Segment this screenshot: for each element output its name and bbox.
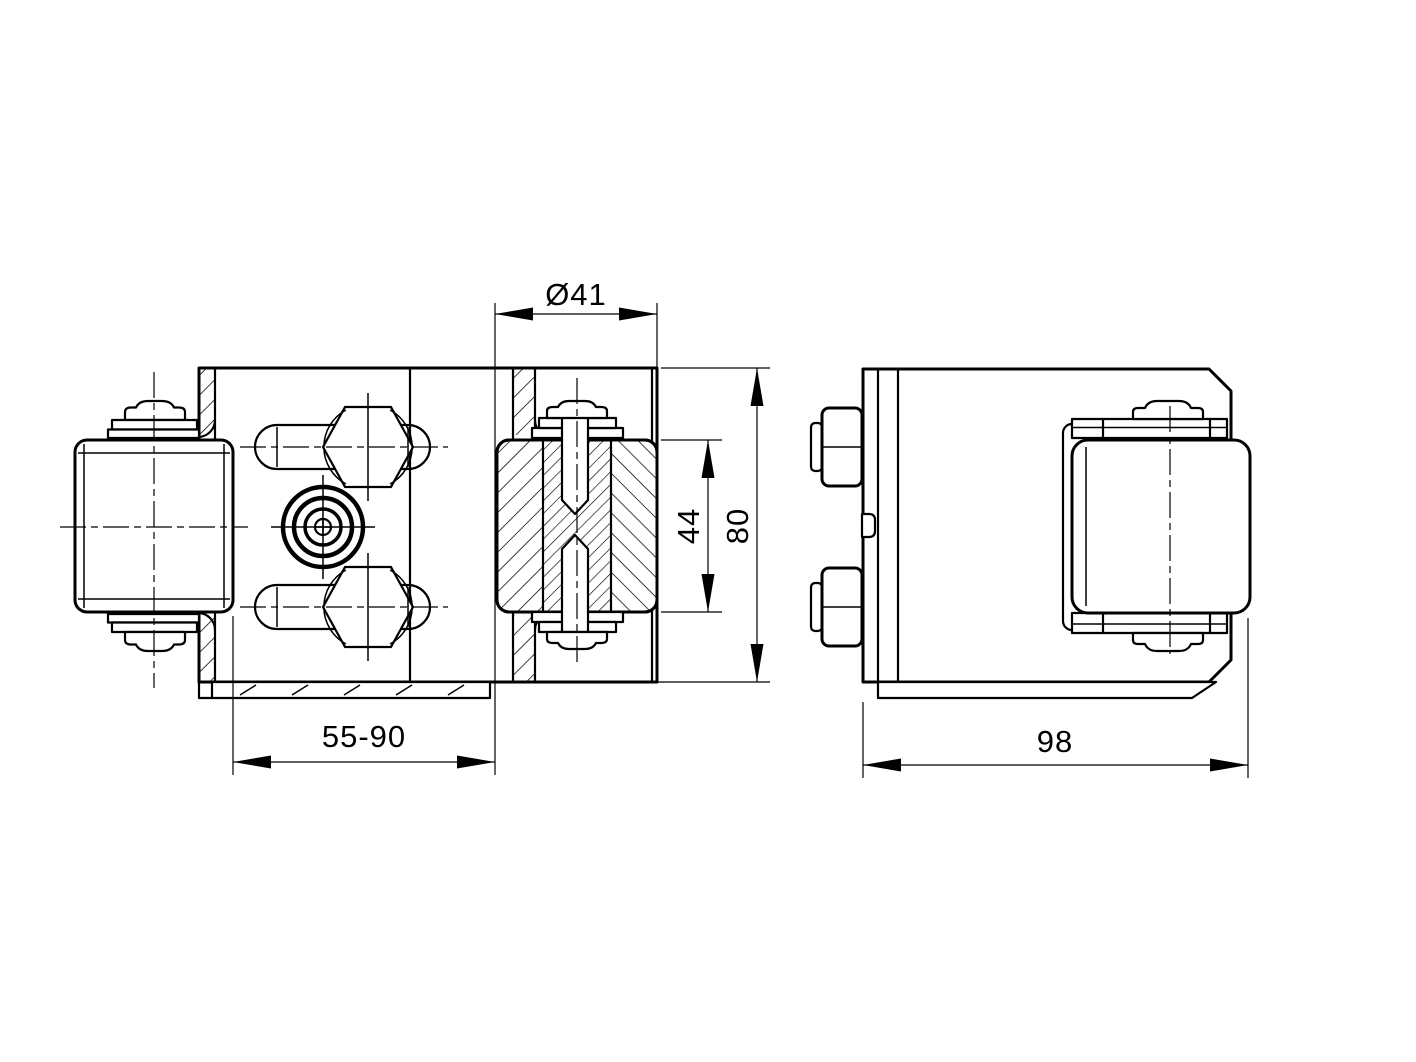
dim-label-roller-width: 44 [671,508,706,544]
axle-cap-bottom [125,632,185,651]
gate-roller-drawing: Ø41 44 80 55-90 [0,0,1416,1062]
dim-label-clamping-range: 55-90 [322,719,406,754]
technical-drawing-canvas: Ø41 44 80 55-90 [0,0,1416,1062]
roller-bracket-top [1072,419,1227,438]
roller-side-body [1072,440,1250,613]
base-plate [199,682,490,698]
dim-roller-width: 44 [661,440,722,612]
dim-label-overall-depth: 98 [1037,724,1073,759]
side-clamp-bolt-top [811,408,862,486]
dim-label-roller-diameter: Ø41 [545,277,607,312]
front-view [60,368,657,698]
side-clamp-bolt-bottom [811,568,862,646]
axle-shaft-upper [562,414,588,514]
axle-cap-top [125,401,185,420]
roller-bracket-bottom [1072,613,1227,633]
side-roller-assembly [1063,401,1250,654]
axle-shaft-lower [562,535,588,632]
side-view [811,369,1250,698]
side-base-plate [878,682,1216,698]
grease-fitting [862,514,875,537]
dim-label-overall-height: 80 [720,508,755,544]
